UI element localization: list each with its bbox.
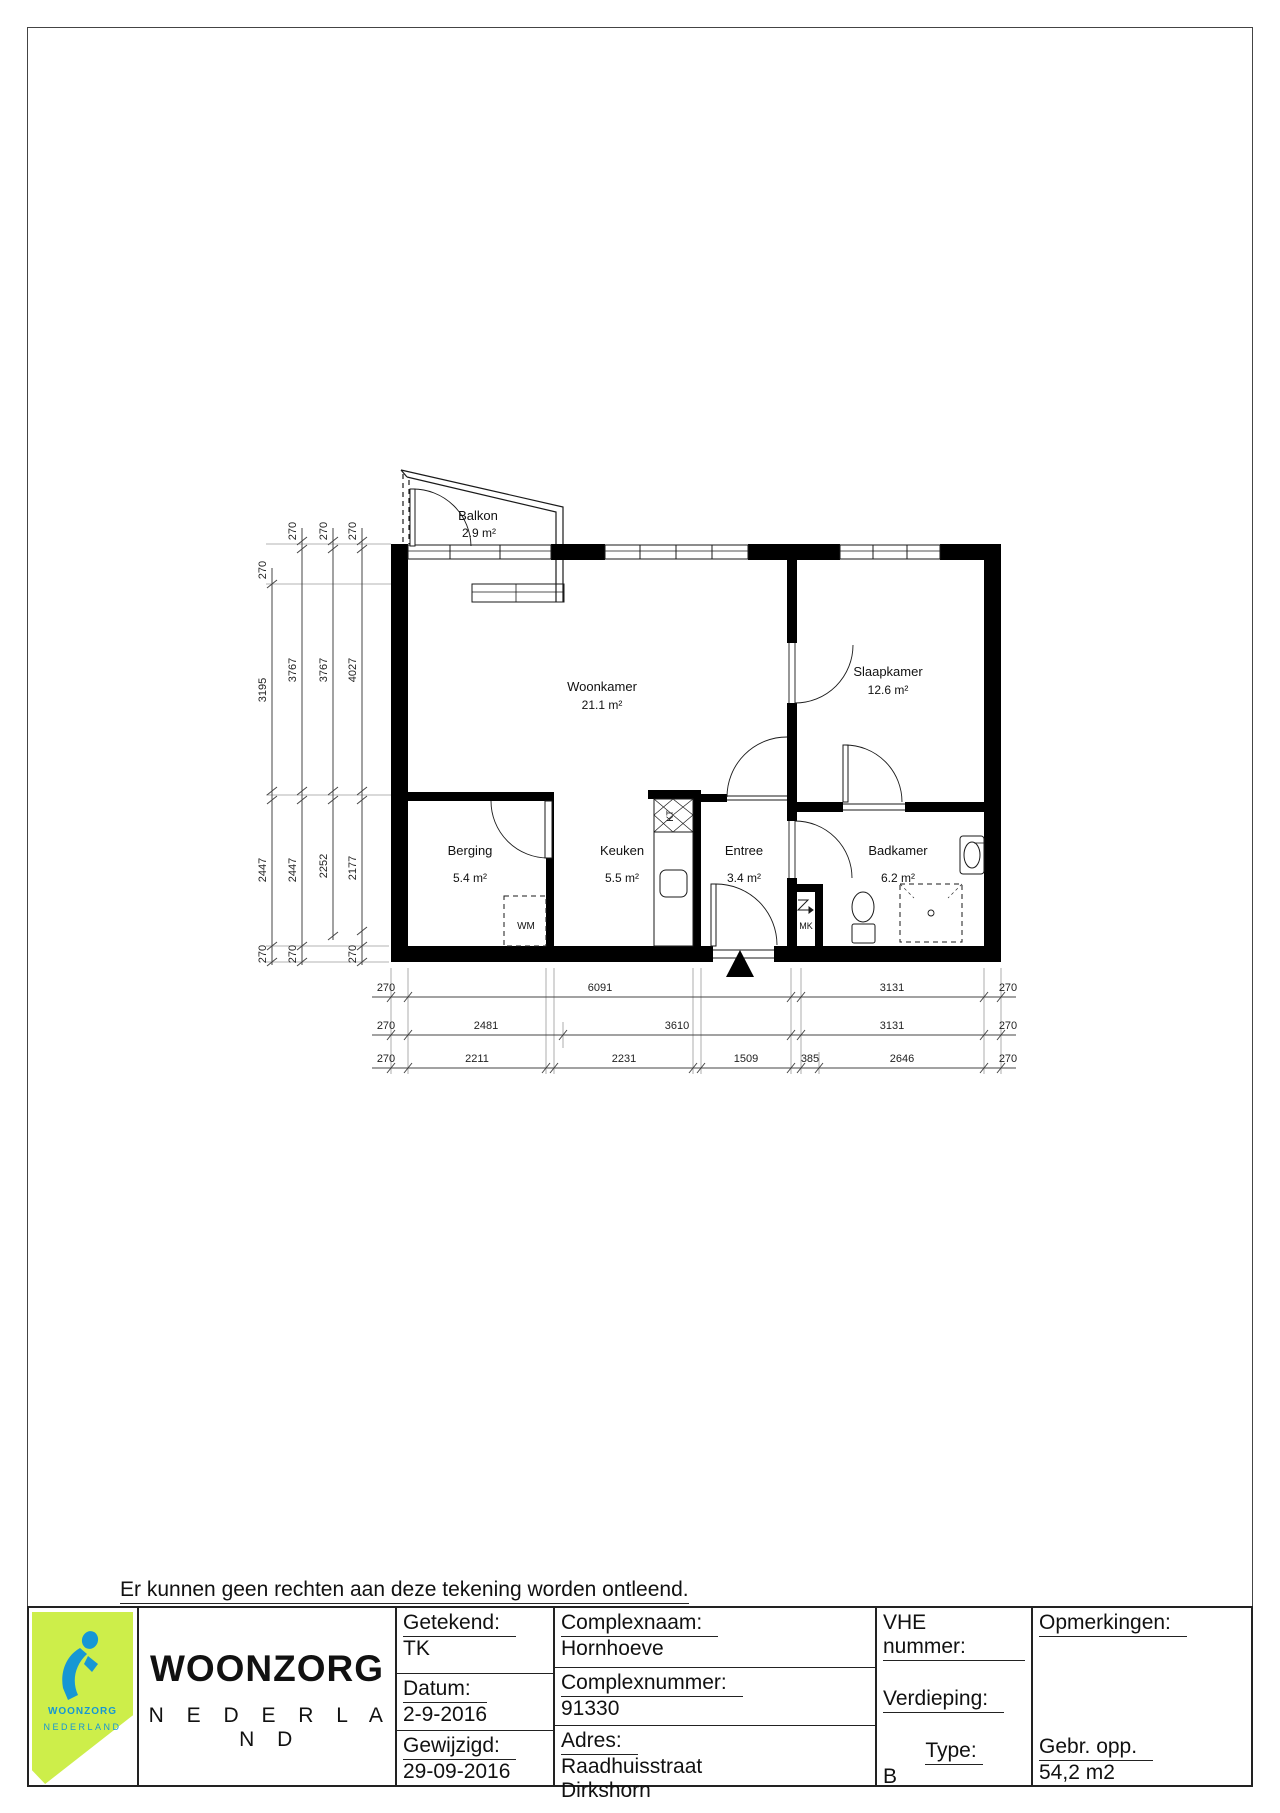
dim-label: 3610 — [665, 1020, 689, 1032]
dim-label: 2447 — [287, 858, 299, 882]
dim-label: 270 — [257, 561, 269, 579]
room-area-keuken: 5.5 m² — [605, 871, 639, 885]
brand-woonzorg: WOONZORG — [139, 1648, 395, 1690]
dim-label: 270 — [318, 522, 330, 540]
field-complexnaam: Complexnaam: Hornhoeve — [555, 1608, 875, 1667]
dim-label: 270 — [257, 945, 269, 963]
complexnummer-value: 91330 — [561, 1697, 619, 1720]
dim-label: 270 — [347, 522, 359, 540]
complex-info-cell: Complexnaam: Hornhoeve Complexnummer: 91… — [553, 1608, 875, 1785]
getekend-value: TK — [403, 1637, 430, 1660]
dim-label: 270 — [377, 1053, 395, 1065]
complexnummer-label: Complexnummer: — [561, 1671, 743, 1697]
field-gebropp: Gebr. opp. 54,2 m2 — [1033, 1732, 1253, 1788]
dim-label: 1509 — [734, 1053, 758, 1065]
dimension-lines-left — [267, 528, 367, 966]
complexnaam-label: Complexnaam: — [561, 1611, 718, 1637]
floorplan-sheet: { "disclaimer": "Er kunnen geen rechten … — [0, 0, 1280, 1813]
entrance-arrow — [726, 950, 754, 977]
room-label-slaapkamer: Slaapkamer — [853, 664, 923, 679]
room-label-balkon: Balkon — [458, 508, 498, 523]
field-complexnummer: Complexnummer: 91330 — [555, 1667, 875, 1725]
room-label-badkamer: Badkamer — [868, 843, 928, 858]
room-area-badkamer: 6.2 m² — [881, 871, 915, 885]
dim-label: 270 — [377, 982, 395, 994]
kitchen-counter — [654, 832, 693, 946]
brand-cell: WOONZORG N E D E R L A N D — [137, 1608, 395, 1785]
dim-label: 2177 — [347, 856, 359, 880]
dim-label: 3131 — [880, 1020, 904, 1032]
opmerkingen-label: Opmerkingen: — [1039, 1611, 1187, 1637]
room-label-keuken: Keuken — [600, 843, 644, 858]
room-area-slaapkamer: 12.6 m² — [868, 683, 909, 697]
gebropp-value: 54,2 m2 — [1039, 1761, 1115, 1784]
logo-text-nederland: NEDERLAND — [32, 1722, 133, 1732]
adres-value-street: Raadhuisstraat — [561, 1755, 702, 1778]
dim-label: 3195 — [257, 678, 269, 702]
dim-label: 2481 — [474, 1020, 498, 1032]
field-datum: Datum: 2-9-2016 — [397, 1673, 553, 1730]
datum-label: Datum: — [403, 1677, 487, 1703]
floorplan-drawing: 270 3195 2447 270 270 3767 2447 270 270 … — [0, 0, 1280, 1813]
adres-value-city: Dirkshorn — [561, 1779, 651, 1802]
label-wm: WM — [517, 921, 535, 932]
dim-label: 4027 — [347, 658, 359, 682]
dim-label: 2252 — [318, 854, 330, 878]
dim-label: 3767 — [287, 658, 299, 682]
logo-person-icon — [32, 1626, 133, 1716]
dim-label: 270 — [999, 1053, 1017, 1065]
room-area-balkon: 2.9 m² — [462, 526, 496, 540]
field-getekend: Getekend: TK — [397, 1608, 553, 1673]
adres-label: Adres: — [561, 1729, 638, 1755]
remarks-cell: Opmerkingen: Gebr. opp. 54,2 m2 — [1031, 1608, 1253, 1785]
dim-label: 6091 — [588, 982, 612, 994]
dim-label: 270 — [287, 522, 299, 540]
shower — [900, 884, 962, 942]
dim-label: 270 — [999, 1020, 1017, 1032]
sink — [960, 836, 984, 874]
meter-cupboard-symbol — [798, 900, 813, 913]
field-adres: Adres: Raadhuisstraat Dirkshorn — [555, 1725, 875, 1789]
datum-value: 2-9-2016 — [403, 1703, 487, 1726]
room-area-entree: 3.4 m² — [727, 871, 761, 885]
drawn-info-cell: Getekend: TK Datum: 2-9-2016 Gewijzigd: … — [395, 1608, 553, 1785]
windows — [408, 545, 940, 559]
dimension-extension-lines — [266, 544, 1001, 1074]
dim-label: 270 — [347, 945, 359, 963]
room-labels: Balkon 2.9 m² Woonkamer 21.1 m² Slaapkam… — [448, 508, 929, 885]
walls — [391, 544, 1001, 962]
vhe-cell: VHE nummer: Verdieping: Type: B — [875, 1608, 1031, 1785]
field-gewijzigd: Gewijzigd: 29-09-2016 — [397, 1730, 553, 1787]
getekend-label: Getekend: — [403, 1611, 516, 1637]
field-opmerkingen: Opmerkingen: — [1033, 1608, 1253, 1640]
disclaimer-text: Er kunnen geen rechten aan deze tekening… — [120, 1578, 689, 1604]
vhe-label: VHE nummer: — [883, 1611, 1025, 1661]
title-block: WOONZORG NEDERLAND WOONZORG N E D E R L … — [27, 1606, 1253, 1787]
room-area-woonkamer: 21.1 m² — [582, 698, 623, 712]
gewijzigd-label: Gewijzigd: — [403, 1734, 516, 1760]
dim-label: 2211 — [465, 1053, 489, 1065]
gewijzigd-value: 29-09-2016 — [403, 1760, 510, 1783]
woonzorg-logo: WOONZORG NEDERLAND — [32, 1612, 133, 1784]
room-label-woonkamer: Woonkamer — [567, 679, 638, 694]
dim-label: 270 — [377, 1020, 395, 1032]
room-label-berging: Berging — [448, 843, 493, 858]
complexnaam-value: Hornhoeve — [561, 1637, 664, 1660]
toilet — [852, 892, 875, 943]
room-area-berging: 5.4 m² — [453, 871, 487, 885]
dim-label: 385 — [801, 1053, 819, 1065]
logo-text-woonzorg: WOONZORG — [32, 1706, 133, 1717]
room-label-entree: Entree — [725, 843, 763, 858]
verdieping-label: Verdieping: — [883, 1687, 1004, 1713]
dimension-labels-bottom: 270 6091 3131 270 270 2481 3610 3131 270… — [377, 982, 1017, 1065]
brand-nederland: N E D E R L A N D — [145, 1704, 395, 1752]
type-value: B — [883, 1765, 897, 1788]
gebropp-label: Gebr. opp. — [1039, 1735, 1153, 1761]
label-mk: MK — [799, 921, 813, 931]
dim-label: 2231 — [612, 1053, 636, 1065]
dim-label: 3131 — [880, 982, 904, 994]
dim-label: 270 — [287, 945, 299, 963]
label-kt: KT — [665, 810, 675, 822]
dim-label: 3767 — [318, 658, 330, 682]
dim-label: 2447 — [257, 858, 269, 882]
field-verdieping: Verdieping: — [877, 1684, 1031, 1716]
logo-cell: WOONZORG NEDERLAND — [29, 1608, 137, 1785]
dim-label: 270 — [999, 982, 1017, 994]
field-vhe: VHE nummer: — [877, 1608, 1031, 1664]
dim-label: 2646 — [890, 1053, 914, 1065]
field-type-value: B — [877, 1762, 1031, 1792]
